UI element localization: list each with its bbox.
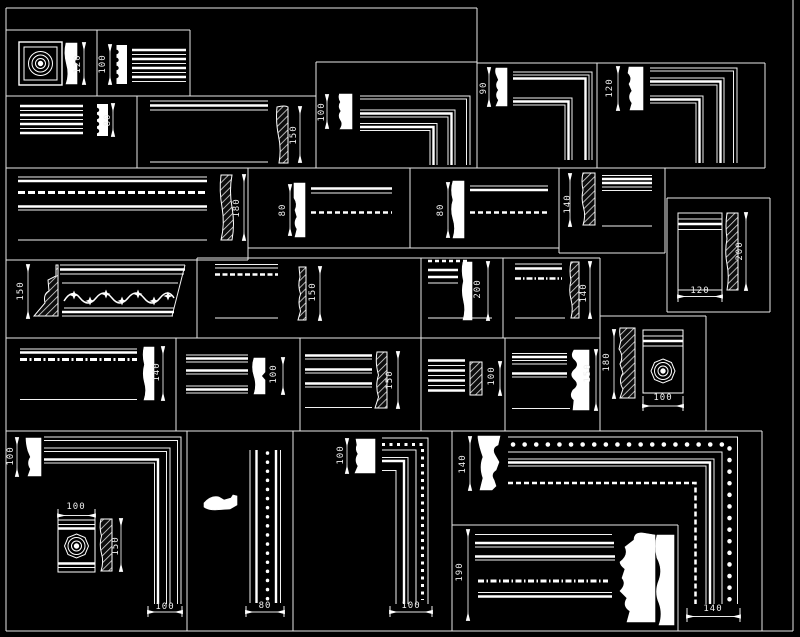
- dim-label: 100: [97, 49, 109, 79]
- dim-label: 200: [472, 274, 484, 304]
- dim-label: 90: [478, 73, 490, 103]
- dim-label: 100: [646, 392, 680, 404]
- dim-label: 140: [696, 603, 730, 615]
- dim-label: 140: [151, 357, 163, 387]
- dim-label: 120: [683, 285, 717, 297]
- dim-label: 100: [316, 97, 328, 127]
- dim-label: 80: [248, 600, 282, 612]
- dim-label: 100: [148, 601, 182, 613]
- dim-label: 150: [307, 277, 319, 307]
- dim-label: 150: [582, 358, 594, 388]
- rosette-block: [643, 330, 683, 393]
- dim-label: 140: [457, 449, 469, 479]
- dim-label: 150: [288, 120, 300, 150]
- cad-drawing-stage: 120 100 80 150 100 90 120 180 80 80 140 …: [0, 0, 800, 637]
- dim-label: 100: [486, 361, 498, 391]
- dim-label: 150: [384, 365, 396, 395]
- dim-label: 120: [72, 49, 84, 79]
- dim-label: 200: [734, 236, 746, 266]
- dim-label: 80: [102, 105, 114, 135]
- dim-label: 140: [578, 278, 590, 308]
- dim-label: 150: [15, 276, 27, 306]
- dim-label: 100: [394, 600, 428, 612]
- dim-label: 100: [59, 501, 93, 513]
- dim-label: 180: [231, 193, 243, 223]
- dim-label: 180: [601, 347, 613, 377]
- dim-label: 80: [277, 195, 289, 225]
- dim-label: 100: [335, 440, 347, 470]
- floral-vine-band: [64, 290, 174, 306]
- beaded-bands: [18, 193, 730, 611]
- dim-label: 80: [435, 195, 447, 225]
- dim-label: 140: [562, 189, 574, 219]
- dim-label: 150: [110, 531, 122, 561]
- dimension-lines: [17, 43, 746, 620]
- dim-label: 190: [454, 557, 466, 587]
- dim-label: 120: [604, 73, 616, 103]
- dim-label: 100: [268, 359, 280, 389]
- molding-lines-thick: [18, 50, 722, 603]
- dim-label: 100: [5, 441, 17, 471]
- square-rosette: [19, 42, 62, 85]
